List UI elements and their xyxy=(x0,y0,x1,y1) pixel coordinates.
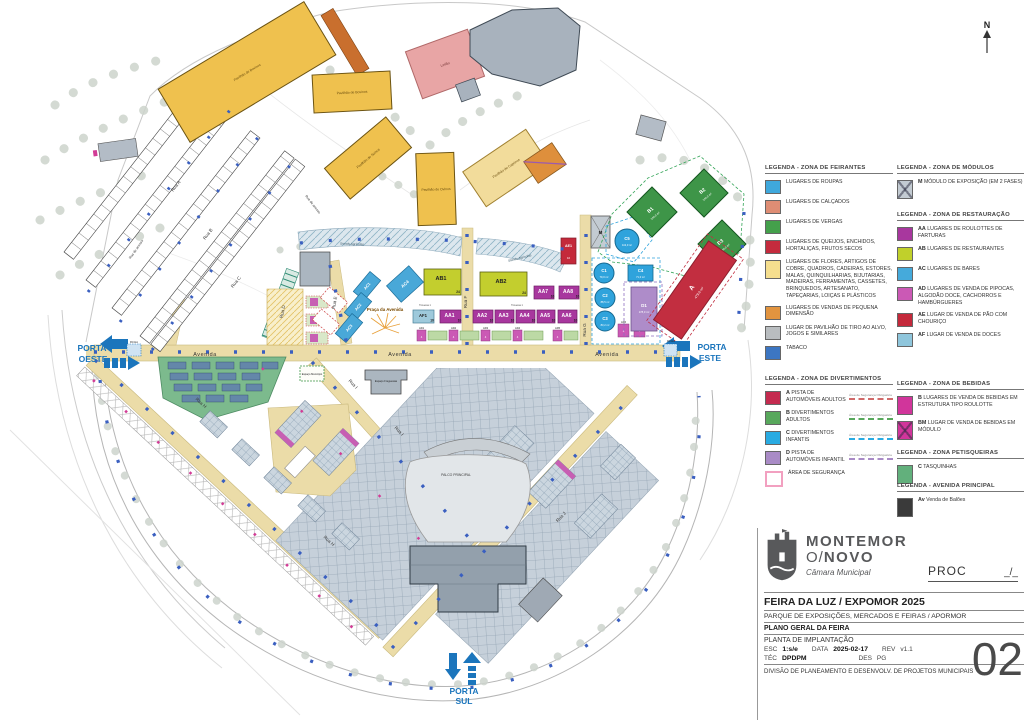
swatch-vergas xyxy=(765,220,781,234)
castle-icon xyxy=(764,528,800,584)
svg-text:10: 10 xyxy=(552,319,556,323)
svg-text:Rua I: Rua I xyxy=(348,378,359,389)
north-arrow-icon xyxy=(982,30,992,54)
legend-item: C TASQUINHAS xyxy=(897,464,1024,484)
legend-item: LUGARES DE FLORES, ARTIGOS DE COBRE, QUA… xyxy=(765,259,893,300)
stands-agricolas-label: Stands Agrícolas xyxy=(340,242,364,247)
svg-text:AA8: AA8 xyxy=(563,289,573,295)
unit-ad5: AD54 xyxy=(553,326,562,341)
swatch-queijos xyxy=(765,240,781,254)
unit-aa4: AA410 xyxy=(516,310,535,323)
svg-text:Travessa 1: Travessa 1 xyxy=(419,304,431,307)
legend-item: TABACO xyxy=(765,345,893,360)
swatch-bebidas-roulotte xyxy=(897,396,913,415)
swatch-modulo xyxy=(897,180,913,199)
legend-item: LUGARES DE VENDAS DE PEQUENA DIMENSÃO xyxy=(765,305,893,320)
svg-text:AA4: AA4 xyxy=(519,313,529,319)
plan-sheet: Pavilhão de Bovinos Pavilhão de Bovinos … xyxy=(0,0,1024,724)
svg-text:AD2: AD2 xyxy=(451,326,457,330)
svg-text:AA1: AA1 xyxy=(444,313,454,319)
legend-feirantes-title: LEGENDA - ZONA DE FEIRANTES xyxy=(765,165,893,174)
legend-avenida: LEGENDA - AVENIDA PRINCIPAL Av Venda de … xyxy=(897,483,1024,522)
unit-ac1: AC1 xyxy=(353,272,380,301)
legend-item: D PISTA DE AUTOMÓVEIS INFANTIL Área de S… xyxy=(765,450,893,465)
swatch-bebidas-modulo xyxy=(897,421,913,440)
praca-da-avenida: Praça da Avenida xyxy=(367,307,404,334)
svg-text:AA3: AA3 xyxy=(498,313,508,319)
unit-ab1: AB124 xyxy=(424,269,461,295)
legend-item: AF LUGAR DE VENDA DE DOCES xyxy=(897,332,1024,347)
zone-c1: C1 79,0 m² xyxy=(594,263,614,283)
svg-text:PORTA: PORTA xyxy=(449,686,478,696)
svg-text:Travessa 1: Travessa 1 xyxy=(511,304,523,307)
legend-item: LUGARES DE CALÇADOS xyxy=(765,199,893,214)
unit-ad1: AD14 xyxy=(417,326,426,341)
svg-text:10: 10 xyxy=(576,295,580,299)
svg-text:10: 10 xyxy=(458,319,462,323)
tasquinhas-zone xyxy=(158,357,286,420)
title-block: MONTEMOR O/NOVO Câmara Municipal PROC _/… xyxy=(757,528,1024,720)
north-indicator: N xyxy=(982,20,992,59)
logo-line2: O/NOVO xyxy=(806,550,907,566)
legend-bebidas: LEGENDA - ZONA DE BEBIDAS B LUGARES DE V… xyxy=(897,381,1024,445)
zone-d1: D1 178,0 m² xyxy=(631,287,657,331)
unit-ab2: AB224 xyxy=(480,272,527,296)
legend-item: AB LUGARES DE RESTAURANTES xyxy=(897,246,1024,261)
swatch-tabaco xyxy=(765,346,781,360)
svg-text:Espaço Freguesias: Espaço Freguesias xyxy=(375,379,398,383)
svg-text:AF1: AF1 xyxy=(419,313,428,318)
unit-ad6: AD64 xyxy=(618,320,629,337)
unit-ae1: AE110 xyxy=(561,238,576,264)
svg-text:Praça da Avenida: Praça da Avenida xyxy=(367,307,404,312)
unit-aa3: AA310 xyxy=(495,310,514,323)
north-label: N xyxy=(982,20,992,30)
svg-text:79,0 m²: 79,0 m² xyxy=(600,275,609,279)
svg-text:AD1: AD1 xyxy=(419,326,425,330)
svg-text:AD4: AD4 xyxy=(515,326,521,330)
svg-text:AB1: AB1 xyxy=(435,276,446,282)
swatch-bares xyxy=(897,267,913,281)
unit-ad2: AD24 xyxy=(449,326,458,341)
market-building xyxy=(300,252,330,286)
site-plan: Pavilhão de Bovinos Pavilhão de Bovinos … xyxy=(0,0,760,724)
svg-text:Rua G: Rua G xyxy=(582,323,587,337)
legend-modulos: LEGENDA - ZONA DE MÓDULOS M MÓDULO DE EX… xyxy=(897,165,1024,204)
unit-m: M xyxy=(591,216,610,248)
swatch-divertimentos-infantis xyxy=(765,431,781,445)
zone-c5: C5 113,0 m² xyxy=(615,229,639,253)
legend-item: AE LUGAR DE VENDA DE PÃO COM CHOURIÇO xyxy=(897,312,1024,327)
logo-line3: Câmara Municipal xyxy=(806,568,907,577)
svg-text:Pórtico: Pórtico xyxy=(667,339,676,343)
exhibition-hall xyxy=(470,8,580,86)
unit-aa8: AA810 xyxy=(559,286,579,299)
legend-modulos-title: LEGENDA - ZONA DE MÓDULOS xyxy=(897,165,1024,174)
svg-text:Avenida: Avenida xyxy=(388,352,412,358)
svg-text:10: 10 xyxy=(551,295,555,299)
svg-text:10: 10 xyxy=(574,319,578,323)
zone-b2: B2 140,0 m² xyxy=(680,169,728,217)
legend-item: A PISTA DE AUTOMÓVEIS ADULTOS Área de Se… xyxy=(765,390,893,405)
unit-aa7: AA710 xyxy=(534,286,554,299)
plan-title: PLANO GERAL DA FEIRA xyxy=(764,625,1024,632)
legend-item: AA LUGARES DE ROULOTTES DE FARTURAS xyxy=(897,226,1024,241)
legend-divertimentos: LEGENDA - ZONA DE DIVERTIMENTOS A PISTA … xyxy=(765,376,893,492)
svg-text:Avenida: Avenida xyxy=(595,352,619,358)
legend-item: LUGARES DE VERGAS xyxy=(765,219,893,234)
legend-item: LUGARES DE ROUPAS xyxy=(765,179,893,194)
unit-aa1: AA110 xyxy=(440,310,461,323)
swatch-area-seguranca xyxy=(765,471,783,487)
espaco-municipio: Espaço Município xyxy=(300,366,324,381)
legend-item: AD LUGARES DE VENDA DE PIPOCAS, ALGODÃO … xyxy=(897,286,1024,307)
svg-text:AD3: AD3 xyxy=(483,326,489,330)
svg-text:AA5: AA5 xyxy=(540,313,550,319)
svg-text:AD5: AD5 xyxy=(555,326,561,330)
svg-text:Rua F: Rua F xyxy=(463,296,468,309)
swatch-flores xyxy=(765,260,781,279)
svg-text:Espaço Município: Espaço Município xyxy=(302,372,323,376)
unit-ad3: AD34 xyxy=(481,326,490,341)
svg-text:AA6: AA6 xyxy=(561,313,571,319)
swatch-divertimentos-adultos xyxy=(765,411,781,425)
unit-ac4: AC4 xyxy=(386,266,423,302)
logo-line1: MONTEMOR xyxy=(806,534,907,550)
swatch-tiro-ao-alvo xyxy=(765,326,781,340)
municipality-logo: MONTEMOR O/NOVO Câmara Municipal PROC _/… xyxy=(764,528,1024,590)
unit-aa5: AA510 xyxy=(537,310,555,323)
espaco-freguesias: Espaço Freguesias xyxy=(365,370,407,394)
zone-b1: B1 140,0 m² xyxy=(627,187,677,237)
swatch-pipocas xyxy=(897,287,913,301)
svg-text:C5: C5 xyxy=(624,236,630,241)
unit-ad4: AD44 xyxy=(513,326,522,341)
svg-text:ESTE: ESTE xyxy=(699,353,722,363)
svg-text:10: 10 xyxy=(511,319,515,323)
svg-text:10: 10 xyxy=(430,319,434,323)
swatch-doces xyxy=(897,333,913,347)
svg-text:10: 10 xyxy=(532,319,536,323)
unit-af1: AF110 xyxy=(413,310,434,323)
legend-item: Av Venda de Balões xyxy=(897,497,1024,517)
swatch-roupas xyxy=(765,180,781,194)
unit-aa6: AA610 xyxy=(558,310,577,323)
swatch-farturas xyxy=(897,227,913,241)
swatch-pista-adultos xyxy=(765,391,781,405)
svg-text:AE1: AE1 xyxy=(565,244,572,248)
legend-item: C DIVERTIMENTOS INFANTIS Área de Seguran… xyxy=(765,430,893,445)
svg-text:D1: D1 xyxy=(641,303,647,308)
swatch-pequena-dimensao xyxy=(765,306,781,320)
porta-sul: PORTA SUL xyxy=(445,652,481,706)
svg-text:OESTE: OESTE xyxy=(79,354,108,364)
svg-text:113,0 m²: 113,0 m² xyxy=(622,243,632,247)
swatch-baloes xyxy=(897,498,913,517)
legend-item: M MÓDULO DE EXPOSIÇÃO (EM 2 FASES) xyxy=(897,179,1024,199)
svg-text:24: 24 xyxy=(456,290,460,294)
legend-restauracao: LEGENDA - ZONA DE RESTAURAÇÃO AA LUGARES… xyxy=(897,212,1024,352)
svg-text:71,0 m²: 71,0 m² xyxy=(636,275,645,279)
swatch-restaurantes xyxy=(897,247,913,261)
svg-text:10: 10 xyxy=(567,256,571,260)
swatch-calcados xyxy=(765,200,781,214)
zone-c3: C3 83,2 m² xyxy=(595,311,615,331)
legend-avenida-title: LEGENDA - AVENIDA PRINCIPAL xyxy=(897,483,1024,492)
zone-c4: C4 71,0 m² xyxy=(628,265,653,281)
sheet-number: 02 xyxy=(972,636,1023,682)
swatch-pao-chourico xyxy=(897,313,913,327)
legend-item: BM LUGAR DE VENDA DE BEBIDAS EM MÓDULO xyxy=(897,420,1024,440)
legend-item: B DIVERTIMENTOS ADULTOS Área de Seguranç… xyxy=(765,410,893,425)
svg-text:88,5 m²: 88,5 m² xyxy=(601,300,610,304)
swatch-tasquinhas xyxy=(897,465,913,484)
svg-text:AA7: AA7 xyxy=(538,289,548,295)
svg-text:10: 10 xyxy=(490,319,494,323)
legend-feirantes: LEGENDA - ZONA DE FEIRANTES LUGARES DE R… xyxy=(765,165,893,365)
porta-este: Pórtico PORTA ESTE xyxy=(662,337,727,369)
legend-item: ÁREA DE SEGURANÇA xyxy=(765,470,893,487)
rua-d-market xyxy=(267,289,303,345)
svg-text:C4: C4 xyxy=(638,268,644,273)
legend-restauracao-title: LEGENDA - ZONA DE RESTAURAÇÃO xyxy=(897,212,1024,221)
svg-text:M: M xyxy=(599,230,603,235)
svg-text:Rua de acesso: Rua de acesso xyxy=(304,194,321,214)
svg-text:C1: C1 xyxy=(601,268,607,273)
svg-text:AA2: AA2 xyxy=(477,313,487,319)
sheet-title: FEIRA DA LUZ / EXPOMOR 2025 xyxy=(764,596,1024,608)
svg-text:Avenida: Avenida xyxy=(193,352,217,358)
legend-item: LUGARES DE QUEIJOS, ENCHIDOS, HORTALIÇAS… xyxy=(765,239,893,254)
svg-text:C2: C2 xyxy=(602,293,608,298)
legend-item: LUGAR DE PAVILHÃO DE TIRO AO ALVO, JOGOS… xyxy=(765,325,893,340)
zone-c2: C2 88,5 m² xyxy=(595,288,615,308)
swatch-pista-infantil xyxy=(765,451,781,465)
svg-text:PORTA: PORTA xyxy=(697,342,726,352)
legend-divertimentos-title: LEGENDA - ZONA DE DIVERTIMENTOS xyxy=(765,376,893,385)
svg-text:Rua B: Rua B xyxy=(202,228,214,241)
svg-text:24: 24 xyxy=(522,291,526,295)
legend-item: B LUGARES DE VENDA DE BEBIDAS EM ESTRUTU… xyxy=(897,395,1024,415)
svg-text:C3: C3 xyxy=(602,316,608,321)
legend-petisqueiras-title: LEGENDA - ZONA PETISQUEIRAS xyxy=(897,450,1024,459)
proc-field: PROC _/_ xyxy=(928,564,1018,582)
svg-text:AB2: AB2 xyxy=(495,279,506,285)
legend-bebidas-title: LEGENDA - ZONA DE BEBIDAS xyxy=(897,381,1024,390)
svg-text:Pórtico: Pórtico xyxy=(130,340,139,344)
unit-aa2: AA210 xyxy=(473,310,493,323)
palco-label: PALCO PRINCIPAL xyxy=(441,473,471,477)
sheet-subtitle: PARQUE DE EXPOSIÇÕES, MERCADOS E FEIRAS … xyxy=(764,613,1024,620)
svg-text:SUL: SUL xyxy=(456,696,473,706)
svg-text:83,2 m²: 83,2 m² xyxy=(601,323,610,327)
legend-item: AC LUGARES DE BARES xyxy=(897,266,1024,281)
svg-text:178,0 m²: 178,0 m² xyxy=(639,310,650,314)
